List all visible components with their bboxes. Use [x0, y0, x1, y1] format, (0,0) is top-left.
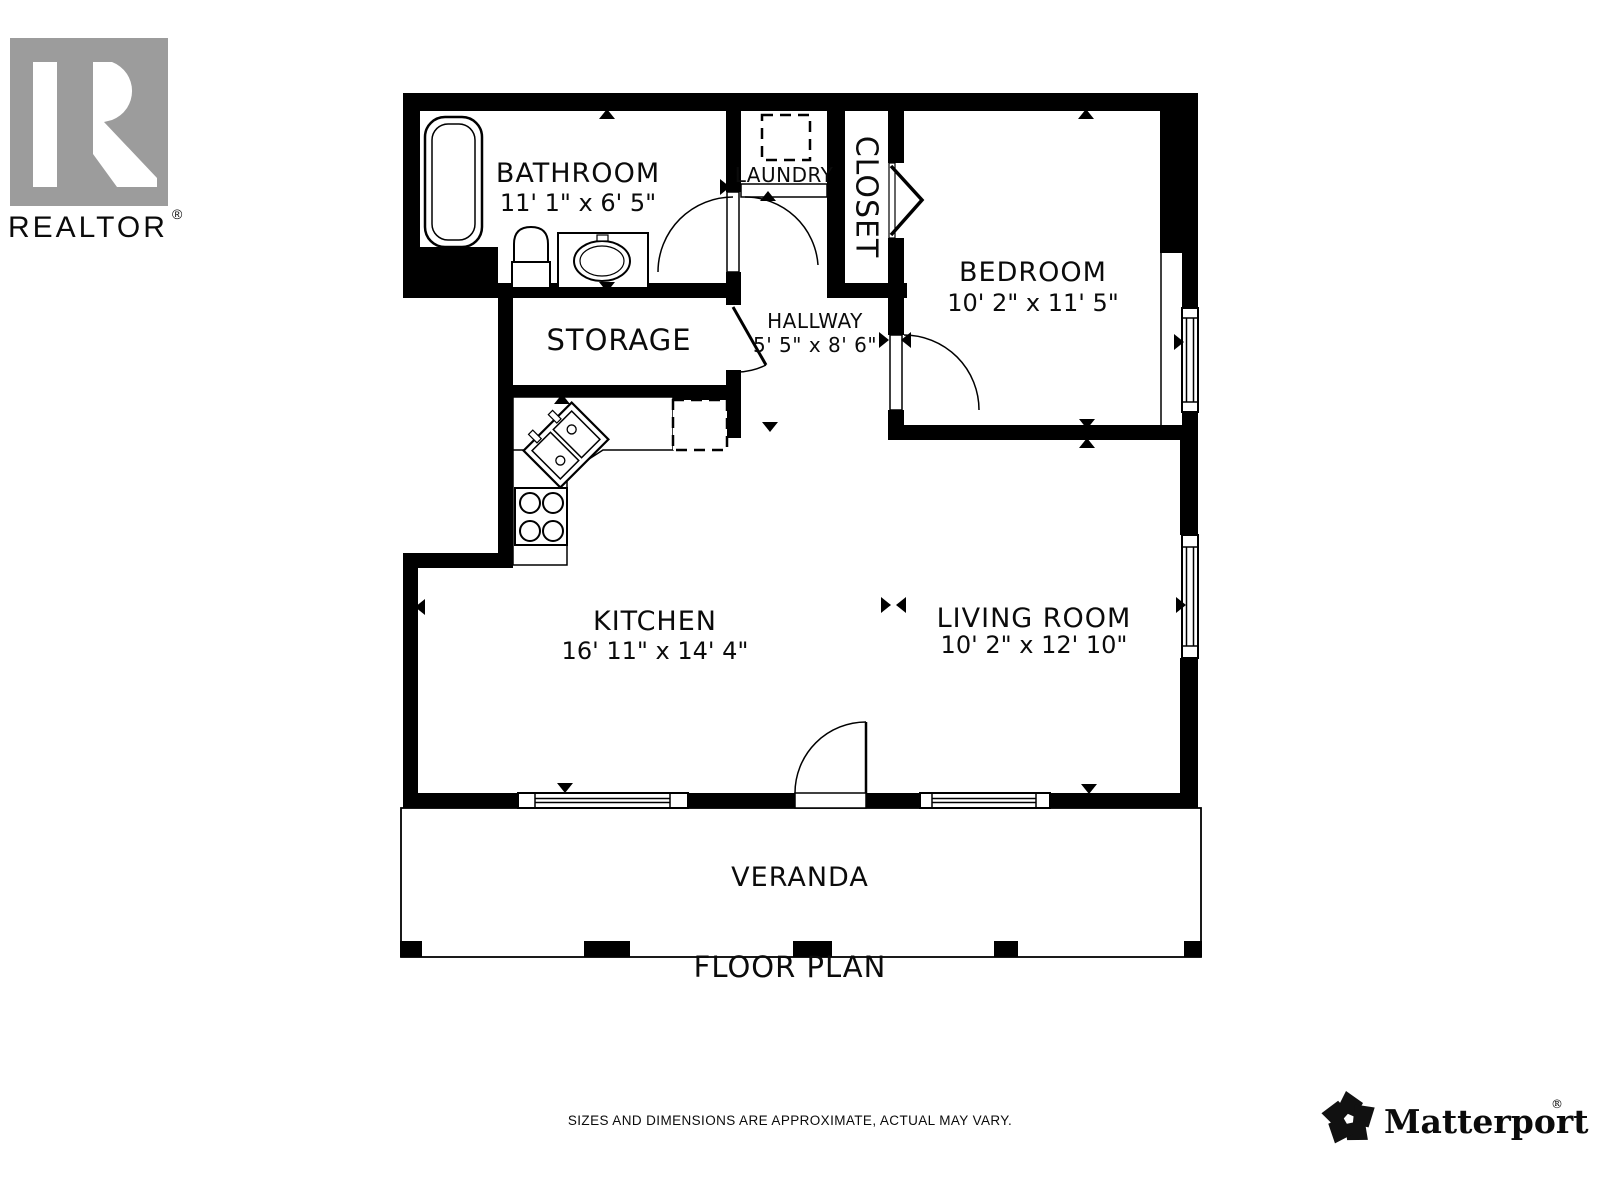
realtor-wordmark: REALTOR [8, 211, 168, 244]
stove [515, 488, 567, 545]
veranda-post [1184, 941, 1202, 957]
toilet [512, 227, 550, 288]
wall-segment [827, 93, 845, 298]
marker-down [762, 422, 778, 432]
washer [762, 115, 810, 160]
wall-segment [827, 283, 907, 298]
wall-segment [888, 298, 904, 335]
bathtub [425, 117, 482, 247]
hallway-dims: 5' 5" x 8' 6" [753, 333, 877, 357]
wall-segment [688, 793, 795, 808]
hallway-label: HALLWAY [767, 309, 863, 333]
marker-right [881, 597, 891, 613]
bathroom-label: BATHROOM [496, 158, 660, 189]
wall-segment [403, 553, 513, 568]
kitchen-label: KITCHEN [593, 606, 717, 637]
closet-label: CLOSET [849, 136, 884, 259]
veranda-label: VERANDA [731, 862, 869, 893]
wall-segment [888, 425, 1198, 440]
veranda-post [584, 941, 630, 957]
bathroom-sink [558, 233, 648, 288]
wall-segment [1160, 111, 1198, 253]
wall-segment [866, 793, 920, 808]
wall-segment [1180, 658, 1198, 793]
marker-right [879, 332, 889, 348]
bedroom-label: BEDROOM [959, 257, 1107, 288]
wall-segment [403, 793, 518, 808]
marker-down [557, 783, 573, 793]
laundry-label: LAUNDRY [735, 163, 834, 187]
marker-left [896, 597, 906, 613]
doors [658, 163, 979, 808]
marker-down [1081, 784, 1097, 794]
closet-bifold-door [888, 163, 922, 238]
veranda-post [400, 941, 422, 957]
living-room-window [1182, 535, 1198, 658]
wall-segment [888, 410, 904, 440]
kitchen-window [518, 793, 688, 808]
disclaimer-text: SIZES AND DIMENSIONS ARE APPROXIMATE, AC… [568, 1113, 1012, 1128]
bedroom-dims: 10' 2" x 11' 5" [947, 289, 1119, 317]
storage-label: STORAGE [546, 323, 691, 357]
matterport-pinwheel-icon [1319, 1091, 1380, 1150]
wall-segment [1180, 440, 1198, 535]
bedroom-window [1182, 308, 1198, 412]
laundry-door [741, 184, 827, 265]
windows [518, 308, 1198, 808]
living-room-dims: 10' 2" x 12' 10" [941, 631, 1128, 659]
matterport-logo: Matterport ® [1319, 1091, 1590, 1150]
matterport-registered-mark: ® [1551, 1097, 1563, 1111]
bathroom-door [658, 192, 741, 272]
bedroom-door [888, 335, 979, 410]
wall-segment [1050, 793, 1198, 808]
wall-segment [888, 93, 904, 163]
realtor-registered-mark: ® [172, 206, 183, 222]
wall-segment [403, 247, 498, 298]
kitchen-dims: 16' 11" x 14' 4" [562, 637, 749, 665]
veranda-post [994, 941, 1018, 957]
bathroom-dims: 11' 1" x 6' 5" [500, 189, 656, 217]
floorplan-canvas: BATHROOM 11' 1" x 6' 5" LAUNDRY CLOSET B… [0, 0, 1600, 1200]
living-room-label: LIVING ROOM [937, 603, 1132, 634]
realtor-logo: REALTOR ® [8, 38, 183, 244]
refrigerator [673, 400, 727, 450]
wall-segment [498, 283, 513, 565]
wall-segment [403, 93, 1198, 111]
wall-segment [403, 553, 418, 808]
floorplan-page: BATHROOM 11' 1" x 6' 5" LAUNDRY CLOSET B… [0, 0, 1600, 1200]
wall-segment [1182, 253, 1198, 308]
front-living-window [920, 793, 1050, 808]
front-door [795, 722, 866, 808]
page-title: FLOOR PLAN [694, 950, 887, 984]
